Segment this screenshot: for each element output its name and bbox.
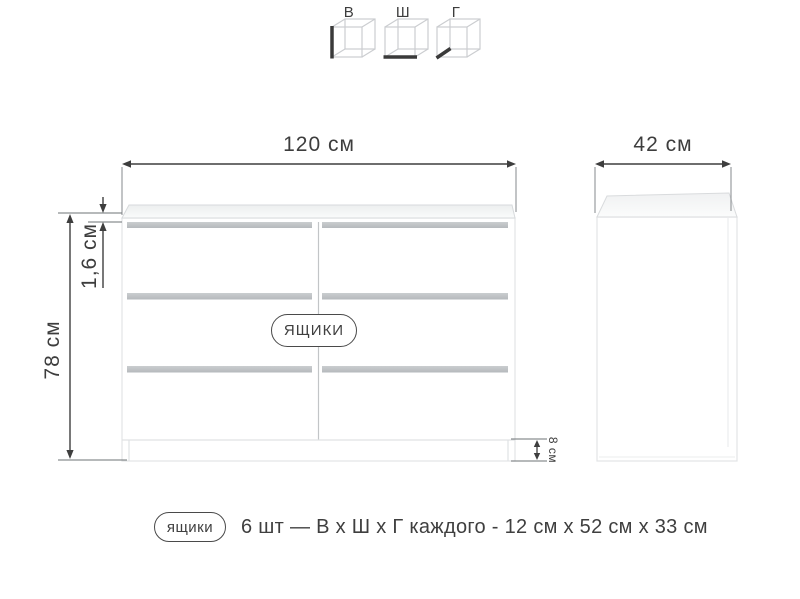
side-body [597,217,737,461]
legend-label-height: В [344,4,355,21]
depth-cube-icon [437,19,481,58]
dresser-dimension-diagram: В Ш Г 120 см 42 см 78 см 1,6 см 8 см ЯЩИ… [0,0,800,599]
caption-tag-text: ящики [167,519,213,536]
side-depth-label: 42 см [633,133,692,157]
front-width-label: 120 см [283,133,355,157]
top-thickness-label: 1,6 см [78,223,102,289]
legend-label-depth: Г [452,4,461,21]
caption-text: 6 шт — В х Ш х Г каждого - 12 см х 52 см… [241,516,708,539]
front-top-panel [122,205,515,218]
front-height-label: 78 см [41,320,65,379]
side-top-panel [597,193,737,217]
height-cube-icon [332,19,375,59]
side-view-cabinet [597,193,737,461]
caption-tag-badge: ящики [154,512,226,542]
legend-label-width: Ш [396,4,410,21]
drawers-tag-badge: ЯЩИКИ [271,314,357,347]
plinth-height-label: 8 см [546,437,560,463]
drawers-tag-text: ЯЩИКИ [284,322,344,339]
plinth-height-dimension [511,439,547,461]
diagram-linework [0,0,800,599]
width-cube-icon [384,19,429,57]
